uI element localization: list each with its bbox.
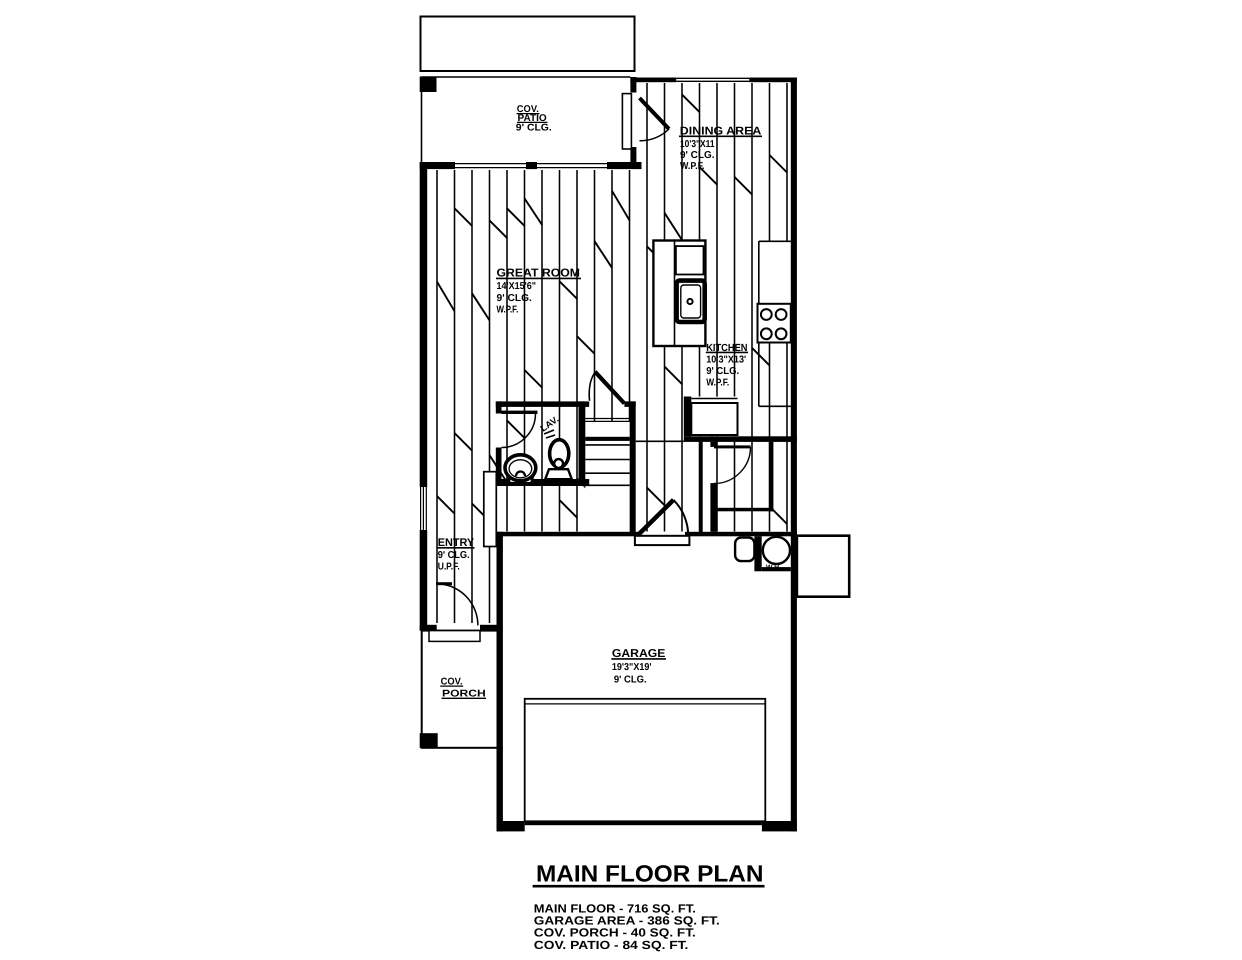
- svg-text:MAIN FLOOR PLAN: MAIN FLOOR PLAN: [536, 861, 764, 887]
- svg-text:W.P.F.: W.P.F.: [497, 305, 519, 316]
- svg-text:9' CLG.: 9' CLG.: [706, 366, 739, 377]
- svg-text:W.P.F.: W.P.F.: [680, 161, 705, 172]
- svg-text:9' CLG.: 9' CLG.: [680, 150, 715, 161]
- svg-text:9' CLG.: 9' CLG.: [497, 293, 533, 304]
- svg-text:10'3"X11: 10'3"X11: [680, 139, 715, 150]
- svg-text:9' CLG.: 9' CLG.: [516, 122, 552, 133]
- svg-text:19'3"X19': 19'3"X19': [612, 662, 652, 673]
- svg-text:U.P.F.: U.P.F.: [438, 562, 460, 573]
- svg-text:W.P.F.: W.P.F.: [706, 378, 729, 389]
- svg-text:COV. PATIO - 84 SQ. FT.: COV. PATIO - 84 SQ. FT.: [534, 938, 689, 952]
- svg-text:W.H.: W.H.: [766, 565, 781, 572]
- svg-text:14'X15'6": 14'X15'6": [497, 281, 537, 292]
- svg-text:9' CLG.: 9' CLG.: [438, 550, 470, 561]
- svg-text:10'3"X13': 10'3"X13': [706, 355, 746, 366]
- svg-text:9' CLG.: 9' CLG.: [614, 675, 647, 686]
